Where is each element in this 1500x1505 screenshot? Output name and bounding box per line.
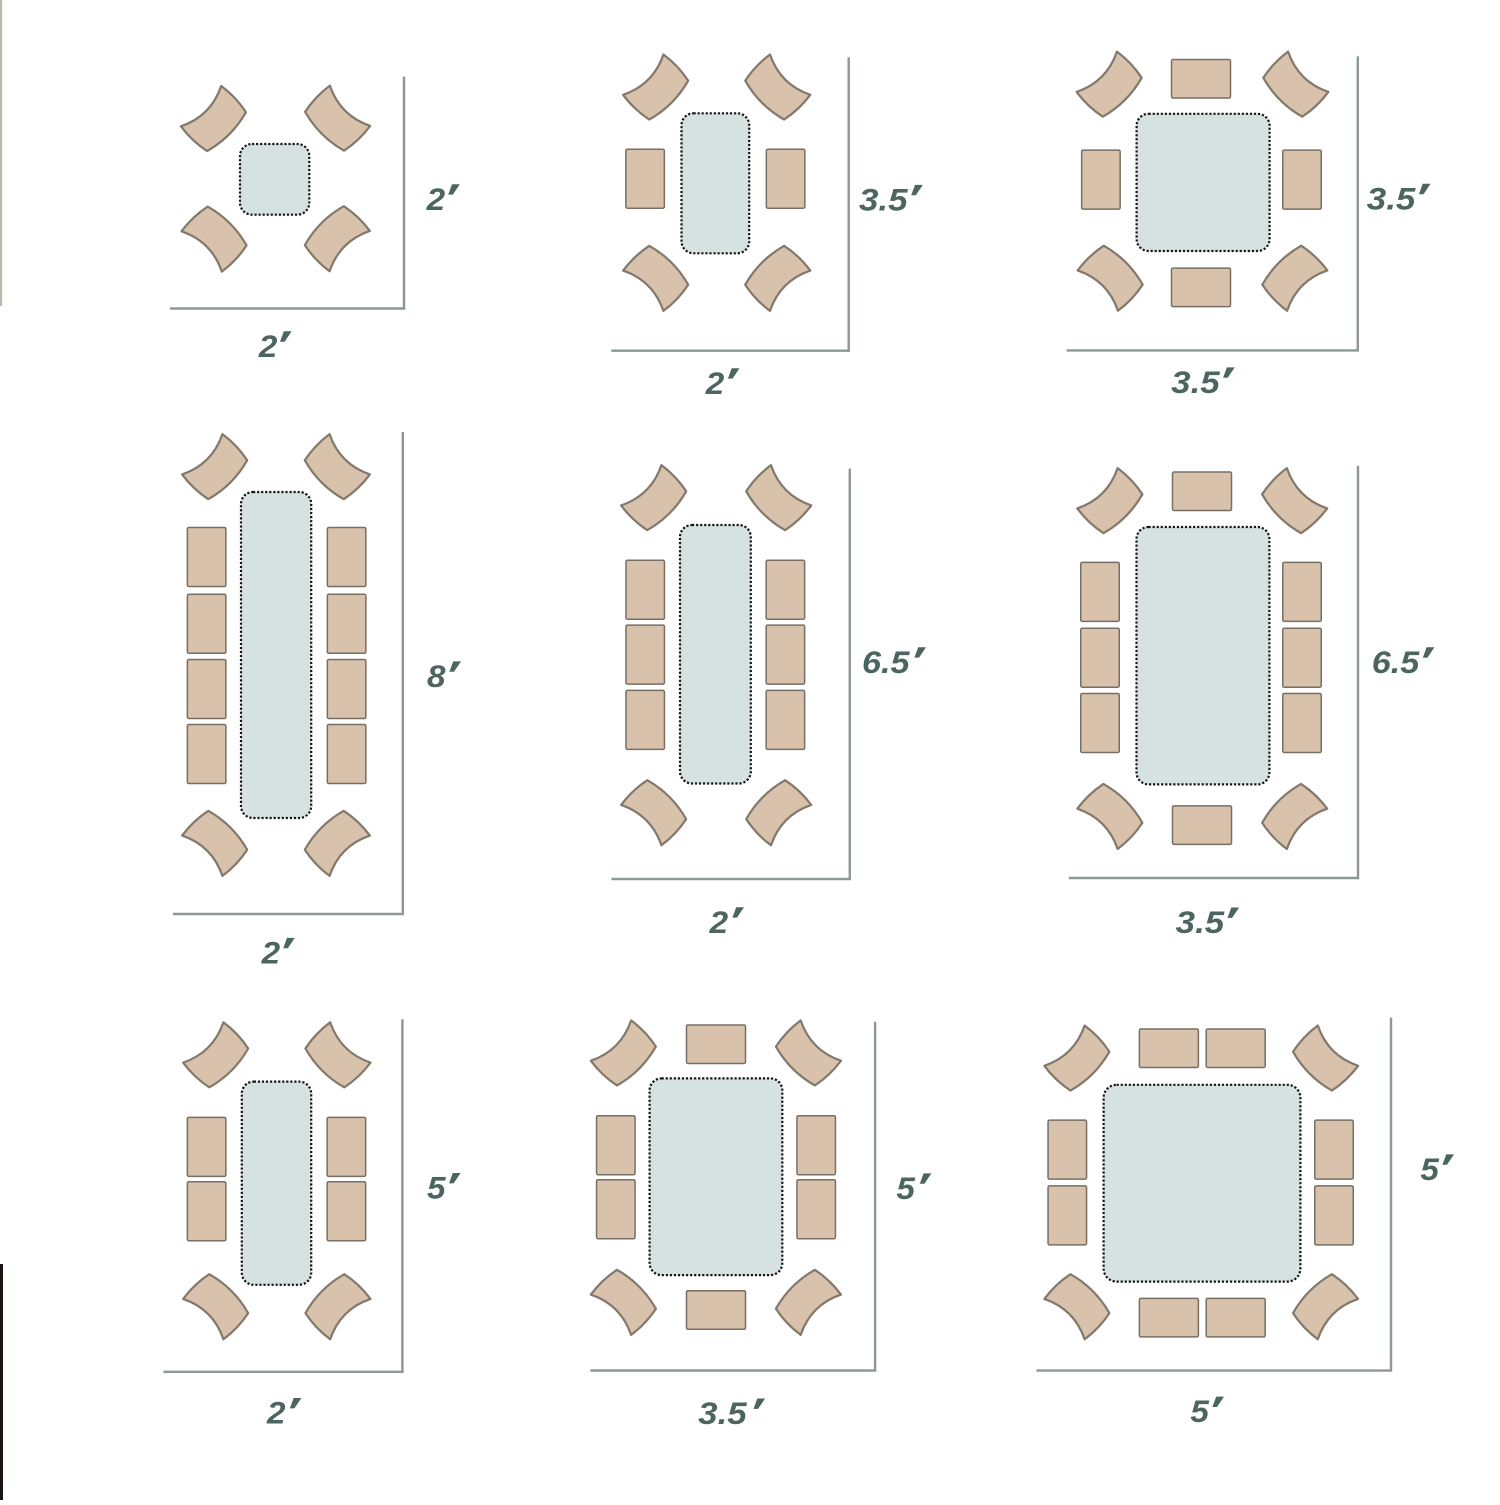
svg-text:3.5: 3.5 [1367,180,1416,216]
svg-text:2: 2 [709,904,729,940]
svg-text:2: 2 [266,1395,286,1431]
svg-text:2: 2 [261,935,281,971]
svg-text:2: 2 [258,328,278,364]
svg-text:3.5: 3.5 [859,182,908,218]
svg-text:6.5: 6.5 [862,644,910,680]
svg-text:3.5: 3.5 [1176,904,1225,940]
svg-text:3.5: 3.5 [1171,364,1220,400]
svg-text:6.5: 6.5 [1372,644,1420,680]
svg-text:5: 5 [427,1170,446,1206]
svg-text:8: 8 [427,658,446,694]
svg-text:5: 5 [896,1170,915,1206]
svg-text:5: 5 [1190,1393,1209,1429]
svg-text:2: 2 [426,181,446,217]
svg-text:5: 5 [1420,1151,1439,1187]
svg-text:2: 2 [705,365,725,401]
svg-text:3.5: 3.5 [698,1395,747,1431]
